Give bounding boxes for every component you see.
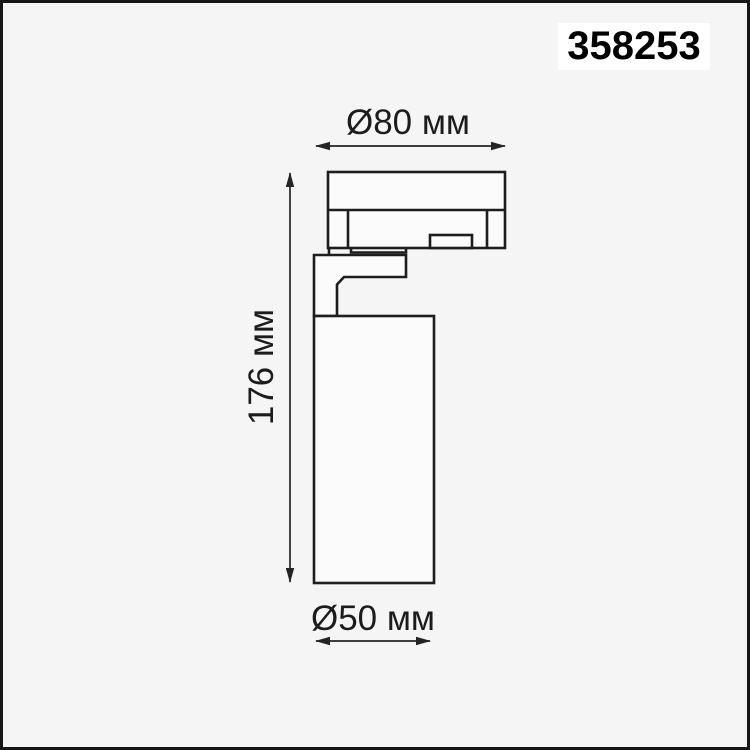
track-adapter-latch <box>430 235 472 248</box>
track-adapter-outline <box>328 172 505 254</box>
dimension-top-label: Ø80 мм <box>346 103 470 142</box>
article-number: 358253 <box>567 24 700 69</box>
lamp-body-outline <box>314 316 434 583</box>
dimension-bottom: Ø50 мм <box>311 599 435 645</box>
mount-bracket-outline <box>314 255 406 316</box>
arrowhead-right-icon <box>416 637 431 645</box>
dimension-drawing: Ø80 мм 176 мм Ø50 мм <box>3 3 747 747</box>
arrowhead-left-icon <box>315 637 330 645</box>
dimension-height: 176 мм <box>242 172 294 583</box>
dimension-height-label: 176 мм <box>242 309 281 425</box>
dimension-top: Ø80 мм <box>315 103 506 150</box>
lamp-body-shape <box>314 316 434 583</box>
arrowhead-left-icon <box>315 142 330 150</box>
arrowhead-right-icon <box>491 142 506 150</box>
product-drawing-frame: Ø80 мм 176 мм Ø50 мм 358253 <box>0 0 750 750</box>
mount-bracket-shape <box>314 255 406 316</box>
article-number-label: 358253 <box>558 23 710 70</box>
arrowhead-up-icon <box>286 172 294 187</box>
dimension-bottom-label: Ø50 мм <box>311 599 435 638</box>
arrowhead-down-icon <box>286 568 294 583</box>
